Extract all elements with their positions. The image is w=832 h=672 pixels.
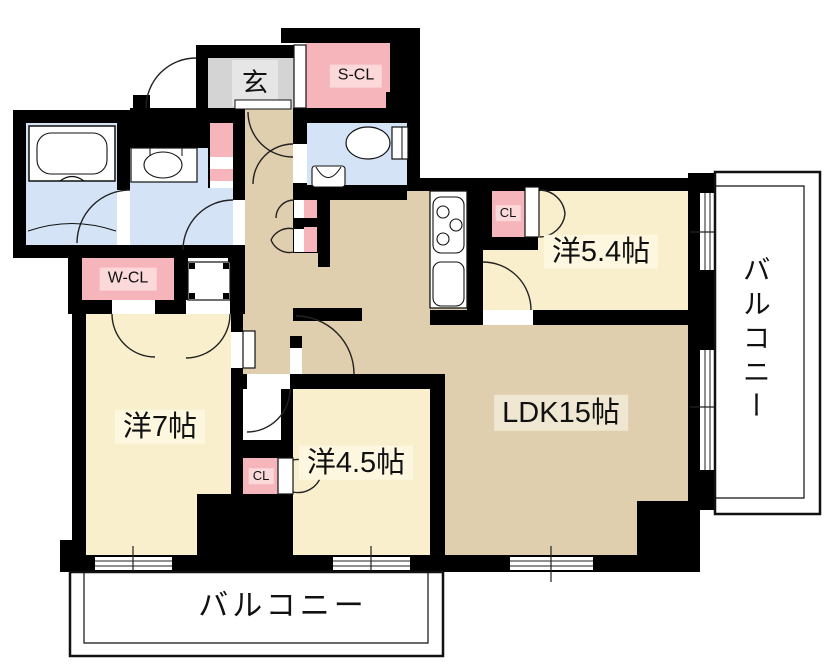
ps-gap2 (210, 181, 233, 188)
floorplan-drawing (0, 0, 832, 672)
kitchen-sink (433, 262, 464, 306)
bathroom-door-opening (117, 190, 130, 245)
cl-lower-door (278, 458, 293, 494)
label-balcony-bottom: バルコニー (198, 590, 367, 622)
label-bedroom-45: 洋4.5帖 (299, 446, 413, 480)
label-wcl: W-CL (100, 268, 157, 291)
label-cl-upper: CL (496, 205, 521, 221)
genkan-step (235, 100, 291, 109)
label-scl: S-CL (330, 65, 382, 88)
ps-pocket1 (210, 123, 233, 157)
label-bedroom-54: 洋5.4帖 (544, 235, 658, 269)
front-door-opening (150, 95, 196, 108)
label-ldk: LDK15帖 (494, 395, 628, 431)
ldk-hall-opening (290, 348, 302, 374)
bedroom45-door-opening (247, 374, 290, 389)
cl-upper-door (525, 187, 539, 237)
washbasin (131, 148, 197, 182)
bedroom7-hall-door-leaf (243, 331, 255, 368)
kitchen-counter (430, 191, 467, 308)
hall-bedroom7-opening (231, 332, 243, 368)
bedroom7-door2-opening (186, 300, 230, 314)
scl-door-leaf (294, 45, 306, 108)
toilet-door-opening (293, 144, 307, 183)
label-bedroom-7: 洋7帖 (115, 410, 205, 444)
shaft-box (188, 262, 230, 300)
ps-pocket2 (210, 169, 233, 181)
label-genkan: 玄 (236, 67, 274, 98)
label-cl-lower: CL (249, 468, 274, 484)
bedroom7-door1-opening (112, 300, 155, 314)
bedroom54-door-opening (483, 310, 533, 325)
stove (433, 197, 464, 253)
label-balcony-right: バルコニー (740, 255, 769, 425)
hall-storage1-opening (294, 200, 304, 218)
hall-storage2 (304, 227, 317, 252)
hall-storage2-opening (294, 229, 304, 252)
ps-gap1 (210, 157, 233, 169)
washroom-door-opening (233, 200, 245, 245)
floorplan: 玄 S-CL W-CL CL CL 洋5.4帖 洋7帖 洋4.5帖 LDK15帖… (0, 0, 832, 672)
hall-storage1 (304, 200, 317, 218)
